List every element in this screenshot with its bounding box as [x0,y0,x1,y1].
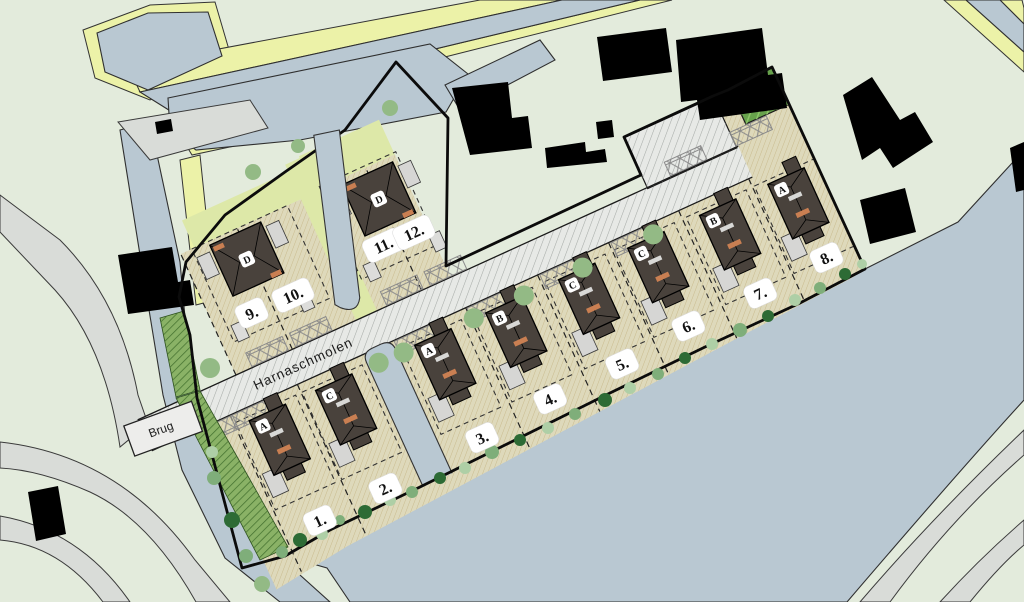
tree [207,471,221,485]
tree [839,268,851,280]
tree [679,352,691,364]
tree [291,139,305,153]
tree [733,323,747,337]
tree [206,446,218,458]
existing-building [596,120,614,139]
tree [358,505,372,519]
tree [293,533,307,547]
tree [569,408,581,420]
tree [814,282,826,294]
tree [239,549,253,563]
tree [624,382,636,394]
tree [224,512,240,528]
tree [254,576,270,592]
tree [434,472,446,484]
tree [514,434,526,446]
tree [598,393,612,407]
site-plan-map: Harnaschmolen [0,0,1024,602]
tree [857,259,867,269]
tree [706,338,718,350]
tree [459,462,471,474]
tree [200,358,220,378]
tree [652,368,664,380]
tree [406,486,418,498]
tree [276,546,288,558]
tree [762,310,774,322]
existing-building [597,28,672,81]
tree [382,100,398,116]
tree [542,422,554,434]
tree [789,294,801,306]
site-plan-svg: Harnaschmolen [0,0,1024,602]
tree [245,164,261,180]
